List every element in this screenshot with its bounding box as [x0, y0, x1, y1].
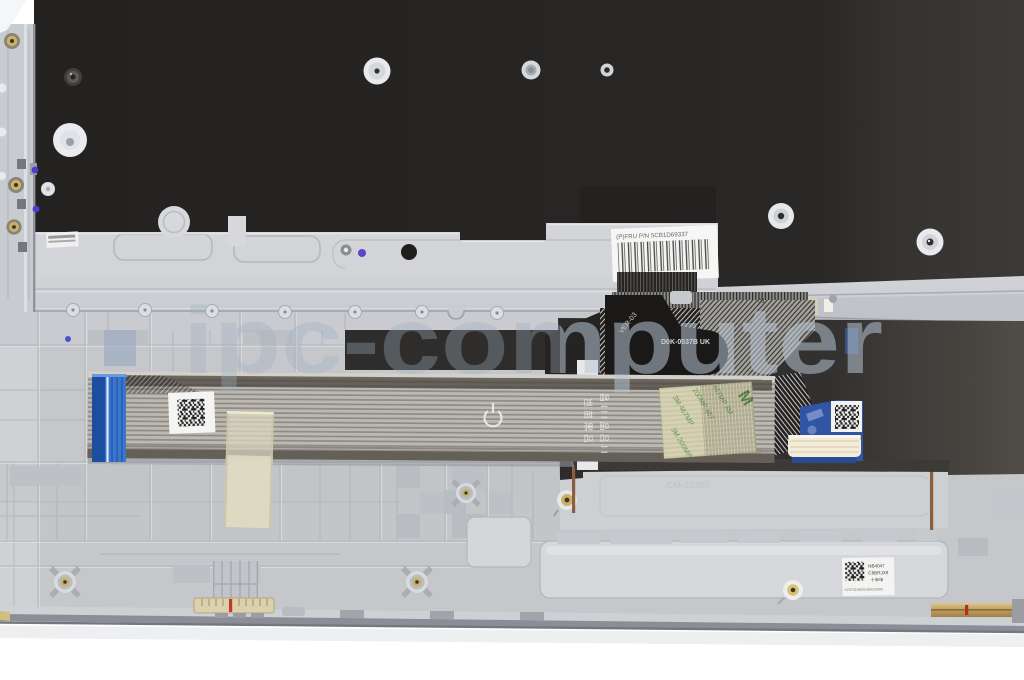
svg-text:C8BRJX8: C8BRJX8	[868, 570, 889, 575]
svg-text:CM-Z2300: CM-Z2300	[667, 480, 710, 490]
svg-text:H23T015M2018G015909: H23T015M2018G015909	[844, 587, 882, 592]
svg-text:NB4047: NB4047	[868, 563, 885, 568]
svg-text:岂苗黑吕: 岂苗黑吕	[583, 398, 593, 446]
svg-text:昌III品吕II: 昌III品吕II	[599, 393, 609, 457]
